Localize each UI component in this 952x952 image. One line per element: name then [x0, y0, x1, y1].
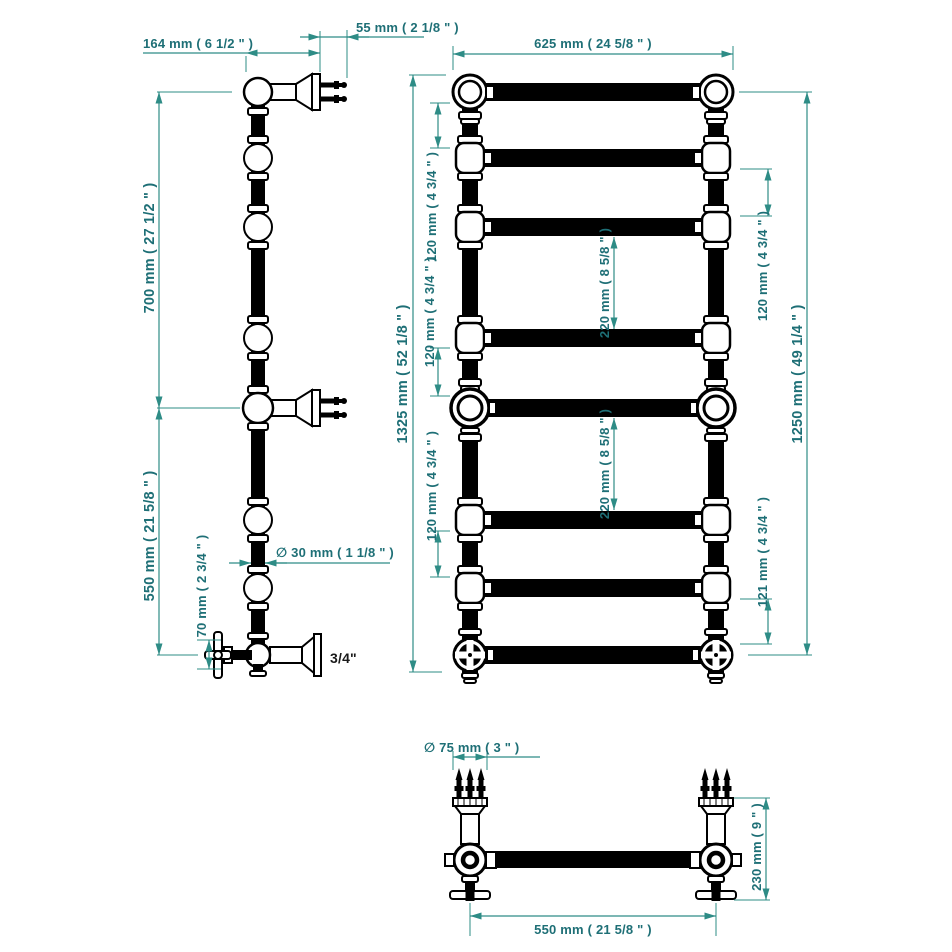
dim-upper-height: 700 mm ( 27 1/2 " )	[142, 92, 240, 408]
bottom-rail	[486, 851, 722, 868]
dim-flange-diameter: ∅ 75 mm ( 3 " )	[424, 740, 540, 770]
dim-gap-120-right: 120 mm ( 4 3/4 " )	[740, 169, 772, 321]
dim-gap-220-label: 220 mm ( 8 5/8 " )	[597, 409, 612, 519]
dim-arm-length-label: 164 mm ( 6 1/2 " )	[143, 36, 253, 51]
dim-centres-label: 550 mm ( 21 5/8 " )	[534, 922, 652, 937]
dim-gap-220-lower: 220 mm ( 8 5/8 " )	[597, 409, 614, 519]
wall-pin	[320, 81, 347, 89]
dim-gap-120-label: 120 mm ( 4 3/4 " )	[755, 211, 770, 321]
middle-ring-left	[451, 379, 496, 441]
dim-gap-120-label: 120 mm ( 4 3/4 " )	[424, 152, 439, 262]
dim-rail-height-label: 1250 mm ( 49 1/4 " )	[790, 304, 806, 443]
technical-drawing-page: 164 mm ( 6 1/2 " ) 55 mm ( 2 1/8 " ) 700…	[0, 0, 952, 952]
dim-lower-height-label: 550 mm ( 21 5/8 " )	[142, 471, 158, 602]
dim-width-label: 625 mm ( 24 5/8 " )	[534, 36, 652, 51]
valve-pipe	[230, 650, 252, 660]
dim-pin-depth-label: 55 mm ( 2 1/8 " )	[356, 20, 459, 35]
dim-gap-120-left-lower: 120 mm ( 4 3/4 " )	[424, 431, 450, 577]
dim-gap-120-label: 120 mm ( 4 3/4 " )	[422, 257, 437, 367]
wall-pin	[320, 95, 347, 103]
corner-ring-top-left	[453, 75, 494, 124]
front-rails	[463, 83, 723, 664]
towel-radiator-drawing: 164 mm ( 6 1/2 " ) 55 mm ( 2 1/8 " ) 700…	[0, 0, 952, 952]
dim-gap-121-right: 121 mm ( 4 3/4 " )	[740, 497, 772, 644]
wall-pin	[320, 397, 347, 405]
wall-pins	[455, 768, 486, 800]
side-wall-bracket-middle	[243, 386, 347, 430]
side-valve-assembly	[205, 632, 321, 678]
bottom-view: ∅ 75 mm ( 3 " ) 230 mm ( 9 " ) 550 mm ( …	[424, 740, 770, 937]
dim-rail-height: 1250 mm ( 49 1/4 " )	[739, 92, 812, 655]
valve-connection-label: 3/4"	[330, 650, 357, 666]
bottom-assembly-left	[445, 768, 496, 901]
dim-valve-drop-label: 70 mm ( 2 3/4 " )	[194, 535, 209, 638]
dim-flange-diameter-label: ∅ 75 mm ( 3 " )	[424, 740, 519, 755]
dim-lower-height: 550 mm ( 21 5/8 " )	[142, 408, 198, 655]
side-view: 164 mm ( 6 1/2 " ) 55 mm ( 2 1/8 " ) 700…	[142, 20, 459, 678]
corner-ring-top-right	[692, 75, 733, 124]
dim-depth-label: 230 mm ( 9 " )	[749, 803, 764, 891]
dim-arm-length: 164 mm ( 6 1/2 " )	[143, 36, 320, 72]
dim-overall-height-label: 1325 mm ( 52 1/8 " )	[395, 304, 411, 443]
dim-upper-height-label: 700 mm ( 27 1/2 " )	[142, 183, 158, 314]
front-view: 625 mm ( 24 5/8 " ) 1325 mm ( 52 1/8 " )…	[395, 36, 812, 683]
dim-width: 625 mm ( 24 5/8 " )	[453, 36, 733, 70]
dim-gap-220-upper: 220 mm ( 8 5/8 " )	[597, 228, 614, 338]
dim-depth: 230 mm ( 9 " )	[734, 798, 770, 900]
middle-ring-right	[690, 379, 735, 441]
dim-gap-120-left-middle: 120 mm ( 4 3/4 " )	[422, 257, 450, 396]
dim-pin-depth: 55 mm ( 2 1/8 " )	[300, 20, 459, 78]
dim-gap-120-label: 120 mm ( 4 3/4 " )	[424, 431, 439, 541]
dim-gap-120-left-top: 120 mm ( 4 3/4 " )	[424, 103, 450, 262]
dim-gap-220-label: 220 mm ( 8 5/8 " )	[597, 228, 612, 338]
wall-pin	[320, 411, 347, 419]
dim-gap-121-label: 121 mm ( 4 3/4 " )	[755, 497, 770, 607]
wall-pins	[701, 768, 732, 800]
bottom-assembly-right	[690, 768, 741, 901]
side-wall-bracket-top	[244, 74, 347, 115]
dim-tube-diameter-label: ∅ 30 mm ( 1 1/8 " )	[276, 545, 394, 560]
dim-centres: 550 mm ( 21 5/8 " )	[470, 903, 716, 937]
